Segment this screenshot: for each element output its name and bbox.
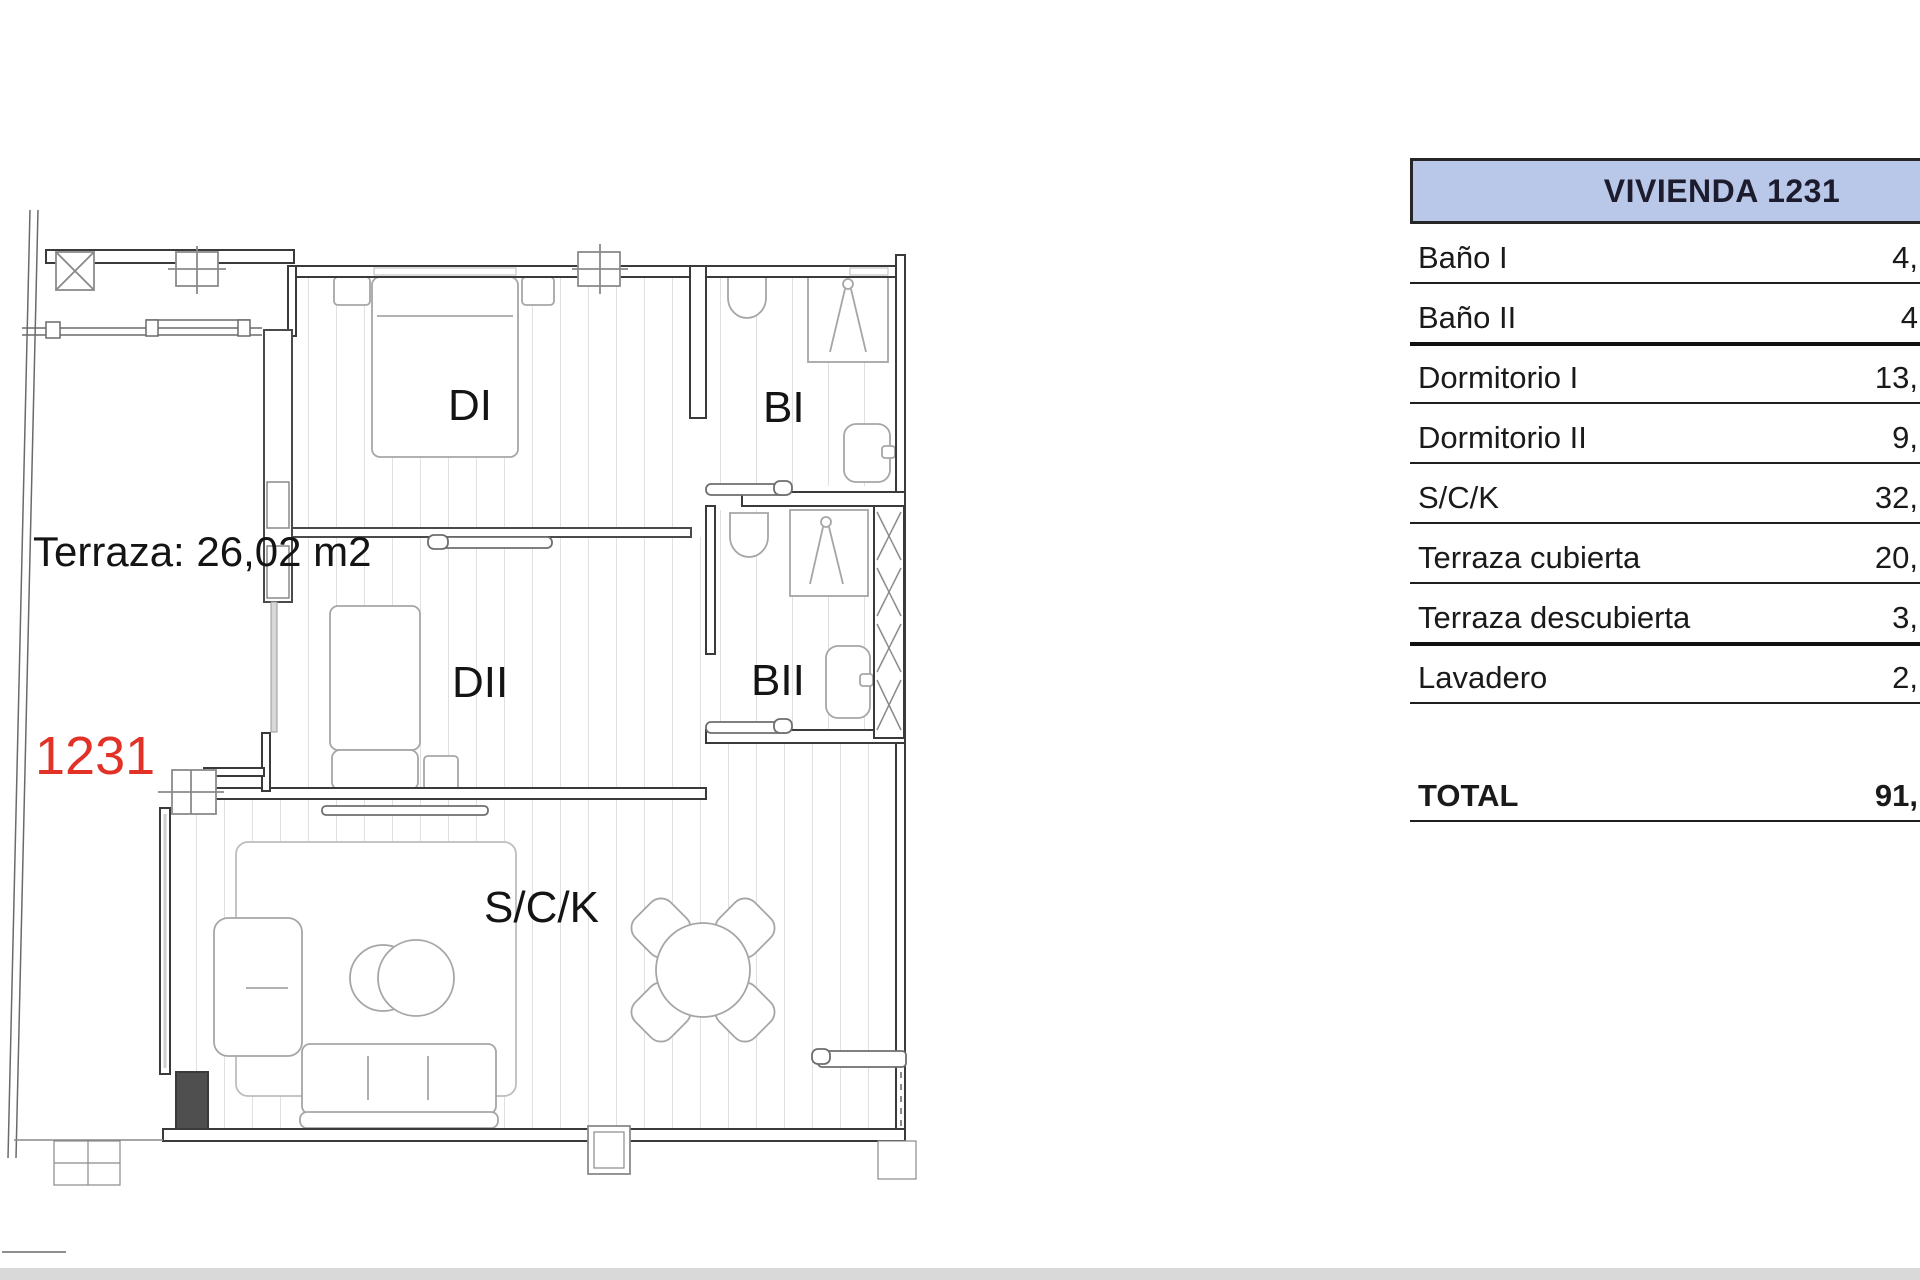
room-label-bi: BI [763,383,805,432]
row-label: S/C/K [1418,482,1499,513]
row-value: 20, [1875,542,1918,573]
toilet-icon [728,272,766,318]
side-table-icon [378,940,454,1016]
total-label: TOTAL [1418,780,1518,811]
table-header: VIVIENDA 1231 [1410,158,1920,224]
total-value: 91, [1875,780,1918,811]
terrace-railing [22,320,262,338]
bed-icon [372,277,518,457]
room-label-bii: BII [751,656,805,705]
row-value: 2, [1892,662,1918,693]
sofa-icon [302,1044,496,1114]
row-value: 3, [1892,602,1918,633]
bed-icon [330,606,420,750]
dining-table-icon [656,923,750,1017]
row-label: Lavadero [1418,662,1547,693]
nightstand-icon [334,277,370,305]
table-row: S/C/K 32, [1410,462,1920,524]
table-row: Dormitorio I 13, [1410,342,1920,404]
row-value: 13, [1875,362,1918,393]
table-row: Terraza descubierta 3, [1410,582,1920,646]
row-label: Terraza cubierta [1418,542,1640,573]
table-row: Baño II 4 [1410,282,1920,346]
table-row: Dormitorio II 9, [1410,402,1920,464]
bottom-edge-strip [0,1268,1920,1280]
table-row: Terraza cubierta 20, [1410,522,1920,584]
nightstand-icon [522,277,554,305]
table-row: Lavadero 2, [1410,642,1920,704]
table-row: Baño I 4, [1410,222,1920,284]
shower-icon [790,510,868,596]
row-label: Baño I [1418,242,1508,273]
shower-icon [808,270,888,362]
table-total-row: TOTAL 91, [1410,760,1920,822]
row-label: Dormitorio I [1418,362,1578,393]
floorplan-sheet: DI BI DII BII S/C/K Terraza: 26,02 m2 12… [0,0,1920,1280]
row-label: Dormitorio II [1418,422,1587,453]
row-label: Terraza descubierta [1418,602,1690,633]
armchair-icon [214,918,302,1056]
room-label-dii: DII [452,658,508,707]
row-value: 9, [1892,422,1918,453]
nightstand-icon [424,756,458,790]
terrace-area-label: Terraza: 26,02 m2 [33,528,372,575]
unit-number-label: 1231 [35,726,155,786]
row-value: 4, [1892,242,1918,273]
toilet-icon [730,513,768,557]
room-label-sck: S/C/K [484,883,599,932]
row-label: Baño II [1418,302,1516,333]
room-label-di: DI [448,381,492,430]
row-value: 32, [1875,482,1918,513]
row-value: 4 [1901,302,1918,333]
table-header-title: VIVIENDA 1231 [1604,173,1841,210]
